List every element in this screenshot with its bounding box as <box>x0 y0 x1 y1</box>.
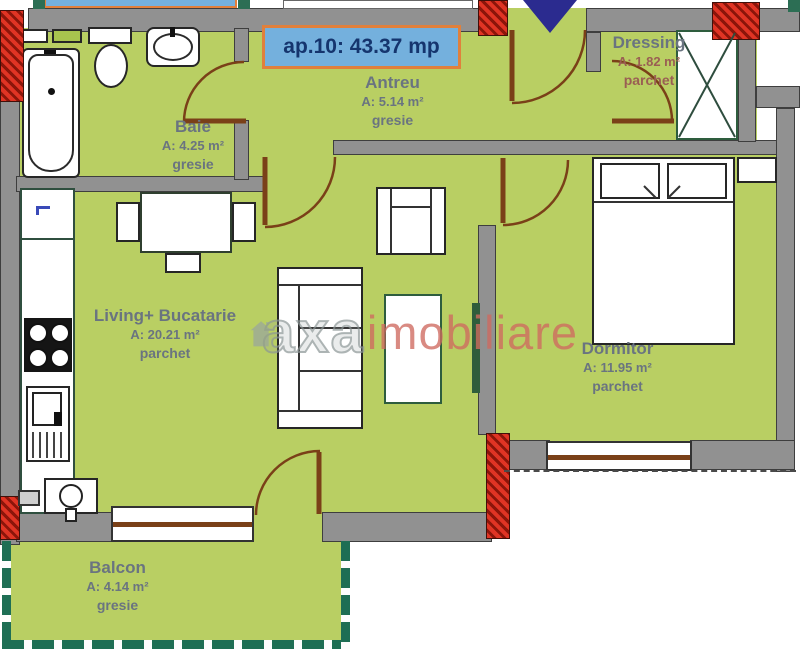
wall-wardrobe-right <box>738 32 756 142</box>
room-area: A: 11.95 m² <box>545 360 690 377</box>
window-pane-line <box>548 455 690 460</box>
pillow <box>600 163 660 199</box>
sofa-cushion-line <box>298 370 361 372</box>
brick-pillar-bottom-left <box>0 496 20 540</box>
floor-balcony-door-gap <box>250 512 324 542</box>
apartment-title-text: ap.10: 43.37 mp <box>283 35 439 59</box>
room-label-dormitor: Dormitor A: 11.95 m² parchet <box>545 338 690 395</box>
washing-machine-vents <box>32 432 65 458</box>
room-area: A: 1.82 m² <box>593 54 705 71</box>
window-dormitor <box>546 441 692 471</box>
balcony-railing-right <box>341 541 350 649</box>
room-label-baie: Baie A: 4.25 m² gresie <box>128 116 258 173</box>
armchair-armrest-line <box>430 189 432 253</box>
wall-antreu-dormitor <box>333 140 795 155</box>
sink <box>146 27 200 67</box>
wall-baie-right-top <box>234 28 249 62</box>
armchair-armrest-line <box>390 189 392 253</box>
toilet-bowl <box>94 44 128 88</box>
sink-faucet <box>170 27 175 37</box>
room-floor: parchet <box>85 344 245 362</box>
dining-chair-bottom <box>165 253 201 273</box>
balcony-railing-left <box>2 541 11 649</box>
stove-burner <box>28 323 48 343</box>
room-name: Antreu <box>330 72 455 94</box>
bathtub-drain <box>48 88 55 95</box>
bathtub <box>22 48 80 178</box>
teal-corner-accent-2 <box>238 0 250 9</box>
room-name: Living+ Bucatarie <box>85 305 245 327</box>
brick-pillar-entrance-left <box>478 0 508 36</box>
room-name: Dressing <box>593 32 705 54</box>
wall-left <box>0 98 20 545</box>
nightstand <box>737 157 777 183</box>
room-label-balcon: Balcon A: 4.14 m² gresie <box>55 557 180 614</box>
room-floor: parchet <box>545 377 690 395</box>
stove-burner <box>50 323 70 343</box>
wall-living-dormitor <box>478 225 496 435</box>
window-pane-line <box>113 522 252 527</box>
boiler-unit <box>44 478 98 514</box>
room-name: Dormitor <box>545 338 690 360</box>
room-floor: gresie <box>55 596 180 614</box>
washing-machine <box>26 386 70 462</box>
teal-corner-accent-3 <box>788 0 800 12</box>
bed <box>592 157 735 345</box>
room-area: A: 5.14 m² <box>330 94 455 111</box>
sofa-armrest-top-line <box>279 284 361 286</box>
sofa <box>277 267 363 429</box>
wall-living-bottom-right <box>322 512 492 542</box>
room-area: A: 4.14 m² <box>55 579 180 596</box>
dining-chair-left <box>116 202 140 242</box>
bed-blanket-line <box>594 201 733 203</box>
room-floor: parchet <box>593 71 705 89</box>
kitchen-tap-icon <box>36 206 50 215</box>
armchair <box>376 187 446 255</box>
room-name: Baie <box>128 116 258 138</box>
dining-chair-right <box>232 202 256 242</box>
bath-shelf-white <box>22 29 48 43</box>
sink-basin <box>153 33 193 61</box>
sofa-cushion-line <box>298 327 361 329</box>
room-floor: gresie <box>330 111 455 129</box>
exterior-dashed-line <box>504 470 796 472</box>
bath-shelf-green <box>52 29 82 43</box>
room-name: Balcon <box>55 557 180 579</box>
counter-divider <box>20 238 75 240</box>
dining-table <box>140 192 232 253</box>
wall-right-bar <box>756 86 800 108</box>
corridor-opening <box>283 0 473 9</box>
wall-top-mid <box>586 8 716 32</box>
sofa-backrest-line <box>298 284 300 412</box>
apartment-title-badge: ap.10: 43.37 mp <box>262 25 461 69</box>
entrance-arrow-icon <box>523 0 577 33</box>
room-label-dressing: Dressing A: 1.82 m² parchet <box>593 32 705 89</box>
room-label-living: Living+ Bucatarie A: 20.21 m² parchet <box>85 305 245 362</box>
stove-burner <box>28 348 48 368</box>
wall-dormitor-right <box>776 108 795 472</box>
bathtub-faucet <box>44 50 56 54</box>
radiator <box>472 303 480 393</box>
boiler-side-box <box>18 490 40 506</box>
boiler-pipe <box>65 508 77 522</box>
coffee-table <box>384 294 442 404</box>
balcony-railing-bottom <box>2 640 350 649</box>
window-living <box>111 506 254 542</box>
brick-pillar-top-right <box>712 2 760 40</box>
wall-dormitor-bottom-right <box>690 440 795 470</box>
adjacent-apartment-label-strip <box>44 0 237 8</box>
brick-pillar-dormitor <box>486 433 510 539</box>
room-area: A: 20.21 m² <box>85 327 245 344</box>
brick-pillar-top-left <box>0 10 24 102</box>
room-floor: gresie <box>128 155 258 173</box>
toilet-tank <box>88 27 132 44</box>
boiler-circle <box>59 484 83 508</box>
washing-machine-knob <box>54 412 62 426</box>
pillow <box>667 163 727 199</box>
sofa-armrest-bottom-line <box>279 410 361 412</box>
stove-burner <box>50 348 70 368</box>
teal-corner-accent-1 <box>33 0 45 9</box>
bathtub-basin <box>28 54 74 172</box>
room-label-antreu: Antreu A: 5.14 m² gresie <box>330 72 455 129</box>
armchair-back-line <box>392 206 430 208</box>
floor-plan: ap.10: 43.37 mp Baie A: 4.25 m² gresie A… <box>0 0 800 649</box>
stove <box>24 318 72 372</box>
wall-dormitor-bottom-left <box>506 440 550 470</box>
room-area: A: 4.25 m² <box>128 138 258 155</box>
